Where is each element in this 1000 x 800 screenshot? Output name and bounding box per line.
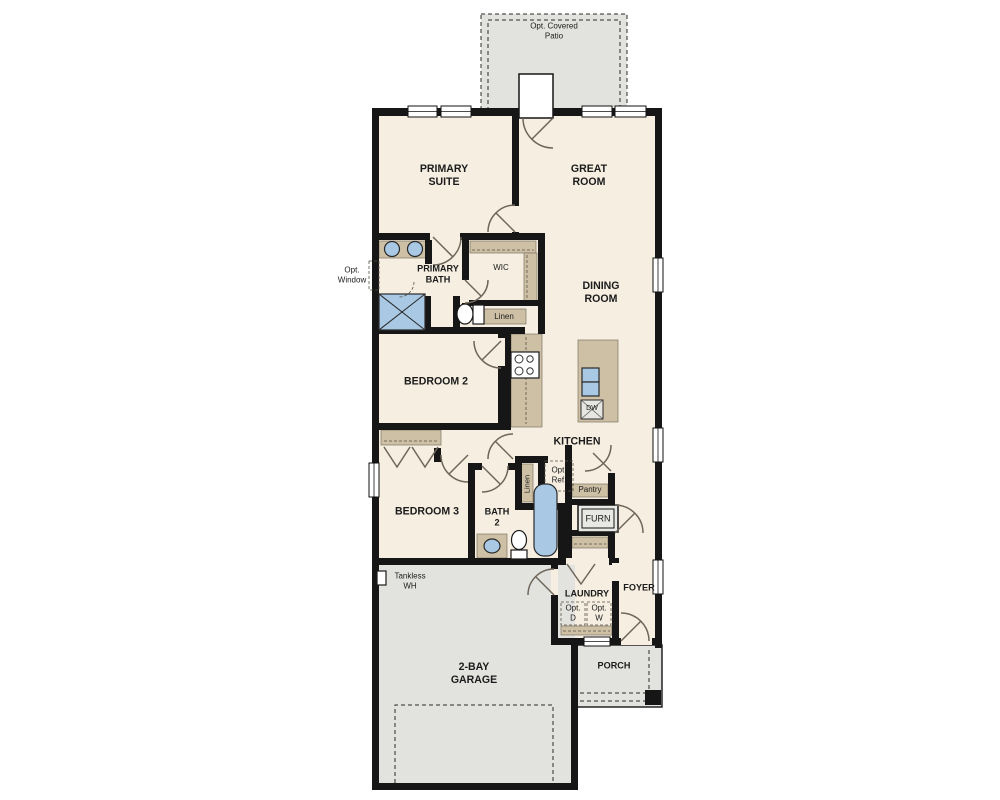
label-opt-washer: Opt. W (591, 603, 606, 622)
label-foyer: FOYER (623, 582, 654, 593)
primary-sink-2 (408, 242, 423, 257)
label-great-room: GREAT ROOM (571, 163, 607, 189)
island-sink (582, 368, 599, 396)
bath2-sink (484, 539, 500, 553)
label-wic: WIC (493, 263, 509, 273)
label-opt-ref: Opt. Ref. (551, 465, 566, 484)
label-linen-upper: Linen (494, 312, 514, 322)
label-kitchen: KITCHEN (554, 435, 601, 448)
label-porch: PORCH (598, 660, 631, 671)
label-dining-room: DINING ROOM (583, 280, 620, 306)
tankless-water-heater (377, 571, 386, 585)
patio-door-landing (519, 74, 553, 118)
wic-shelf-top (470, 241, 536, 253)
label-bath-2: BATH 2 (485, 507, 510, 530)
floorplan-canvas: Opt. Covered Patio PRIMARY SUITE GREAT R… (0, 0, 1000, 800)
label-covered-patio: Opt. Covered Patio (530, 21, 578, 40)
label-garage: 2-BAY GARAGE (451, 661, 497, 687)
porch-column (645, 690, 661, 705)
label-linen-lower: Linen (523, 475, 532, 493)
label-bedroom-3: BEDROOM 3 (395, 505, 459, 518)
wall-left (372, 108, 379, 790)
label-primary-bath: PRIMARY BATH (417, 264, 459, 287)
label-primary-suite: PRIMARY SUITE (420, 163, 468, 189)
wall-garage-bottom (372, 783, 578, 790)
label-tankless-wh: Tankless WH (394, 571, 425, 590)
floorplan-drawing (0, 0, 1000, 800)
label-opt-window: Opt. Window (338, 265, 366, 284)
wall-garage-right (571, 645, 578, 790)
label-opt-dryer: Opt. D (565, 603, 580, 622)
wall-bedroom3-right (468, 463, 475, 565)
coat-closet-shelf (572, 537, 608, 548)
label-laundry: LAUNDRY (565, 588, 609, 599)
wic-shelf-right (524, 253, 537, 305)
bathtub (534, 484, 557, 556)
label-bedroom-2: BEDROOM 2 (404, 375, 468, 388)
kitchen-counter (511, 334, 542, 427)
wall-wic-dining (538, 233, 545, 334)
wall-bedroom2-bottom (379, 423, 511, 430)
wall-primary-bottom (379, 233, 545, 240)
toilet-bath2 (511, 531, 527, 560)
label-dishwasher: DW (586, 405, 598, 413)
label-furnace: FURN (586, 514, 611, 525)
bedroom2-closet-shelf (381, 430, 441, 445)
range (511, 352, 539, 378)
primary-sink-1 (385, 242, 400, 257)
laundry-shelf (561, 626, 612, 635)
label-pantry: Pantry (578, 485, 601, 495)
toilet-primary (457, 304, 484, 324)
